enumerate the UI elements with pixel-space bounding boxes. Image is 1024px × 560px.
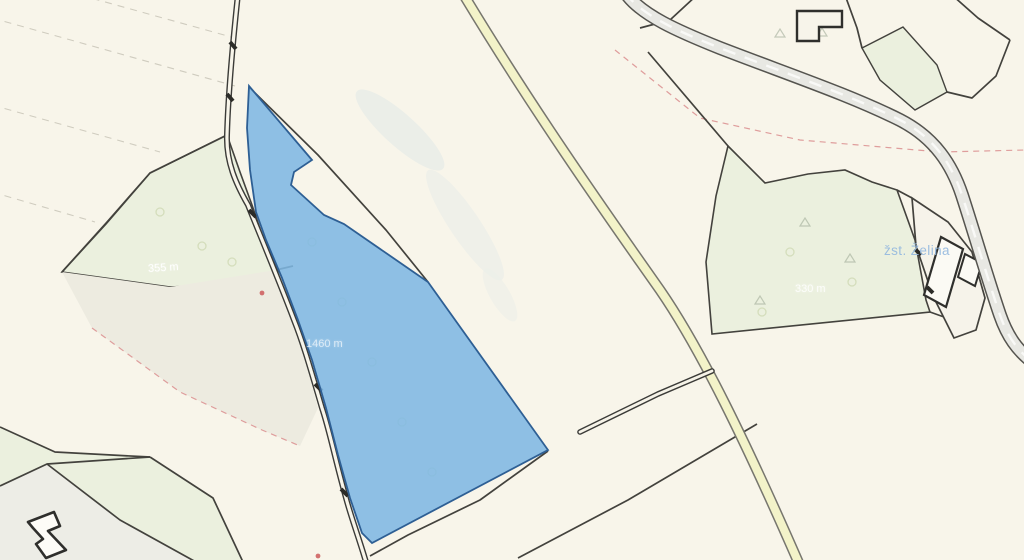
tinted-parcel-below-left (62, 270, 318, 446)
woodland-patch-top-right (862, 27, 947, 110)
building-top-right (797, 11, 842, 41)
woodland-parcel-left (62, 135, 278, 287)
track-sliver (580, 371, 712, 432)
map-viewport: žst. Želina 355 m 330 m 1460 m (0, 0, 1024, 560)
map-canvas[interactable] (0, 0, 1024, 560)
woodland-parcel-right (706, 146, 930, 334)
